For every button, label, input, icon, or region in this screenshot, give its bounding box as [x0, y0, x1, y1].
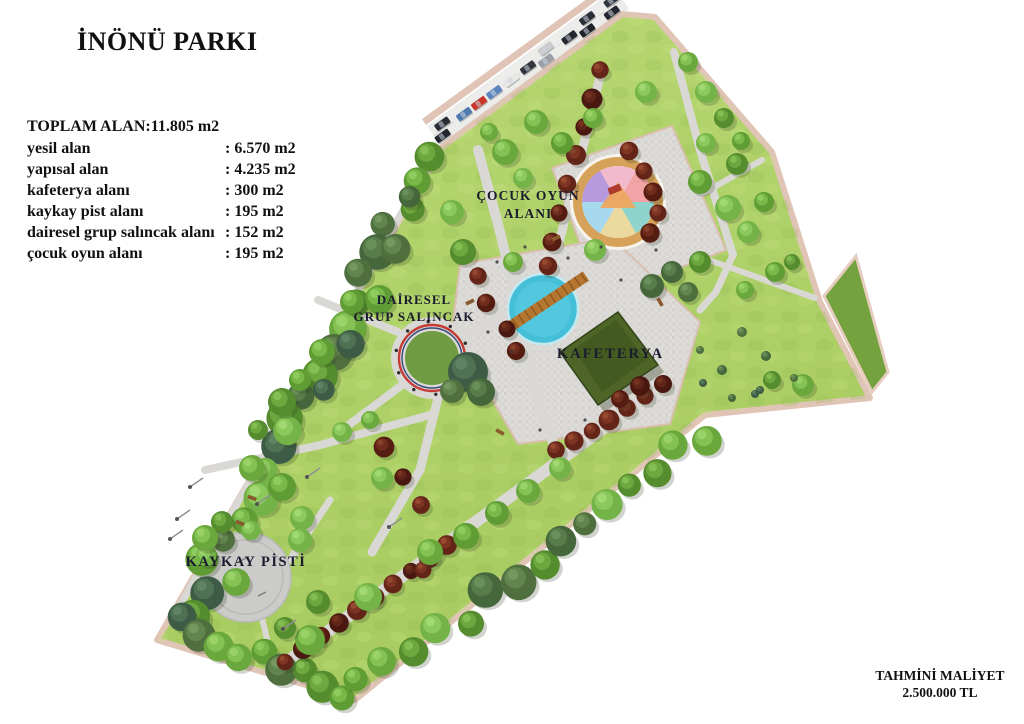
- stat-value: : 195 m2: [225, 201, 357, 222]
- stat-label: yapısal alan: [27, 159, 225, 180]
- stat-label: dairesel grup salıncak alanı: [27, 222, 225, 243]
- stat-row-green-area: yesil alan : 6.570 m2: [27, 138, 357, 159]
- stat-label: kafeterya alanı: [27, 180, 225, 201]
- stat-label: çocuk oyun alanı: [27, 243, 225, 264]
- label-skate: KAYKAY PİSTİ: [160, 553, 332, 571]
- label-swing: DAİRESEL GRUP SALINCAK: [330, 291, 498, 325]
- stat-row-playground-area: çocuk oyun alanı : 195 m2: [27, 243, 357, 264]
- stat-value: : 300 m2: [225, 180, 357, 201]
- stat-value: : 152 m2: [225, 222, 357, 243]
- page-title: İNÖNÜ PARKI: [77, 27, 258, 57]
- stat-row-swing-area: dairesel grup salıncak alanı : 152 m2: [27, 222, 357, 243]
- park-plan-canvas: İNÖNÜ PARKI TOPLAM ALAN:11.805 m2 yesil …: [0, 0, 1024, 724]
- label-cafeteria: KAFETERYA: [538, 345, 683, 363]
- stat-value: : 195 m2: [225, 243, 357, 264]
- label-playground-line1: ÇOCUK OYUN: [452, 187, 604, 205]
- stat-value: : 4.235 m2: [225, 159, 357, 180]
- cost-estimate-title: TAHMİNİ MALİYET: [845, 667, 1024, 684]
- area-stats: TOPLAM ALAN:11.805 m2 yesil alan : 6.570…: [27, 116, 357, 264]
- cost-estimate: TAHMİNİ MALİYET 2.500.000 TL: [845, 667, 1024, 701]
- label-playground-line2: ALANI: [452, 205, 604, 223]
- stat-row-cafeteria-area: kafeterya alanı : 300 m2: [27, 180, 357, 201]
- label-swing-line1: DAİRESEL: [330, 291, 498, 308]
- stat-row-built-area: yapısal alan : 4.235 m2: [27, 159, 357, 180]
- stat-label: yesil alan: [27, 138, 225, 159]
- total-area: TOPLAM ALAN:11.805 m2: [27, 116, 357, 137]
- cost-estimate-value: 2.500.000 TL: [845, 684, 1024, 701]
- stat-value: : 6.570 m2: [225, 138, 357, 159]
- stat-row-skate-area: kaykay pist alanı : 195 m2: [27, 201, 357, 222]
- park-site-plan: [0, 0, 1024, 724]
- label-swing-line2: GRUP SALINCAK: [330, 308, 498, 325]
- label-playground: ÇOCUK OYUN ALANI: [452, 187, 604, 223]
- stat-label: kaykay pist alanı: [27, 201, 225, 222]
